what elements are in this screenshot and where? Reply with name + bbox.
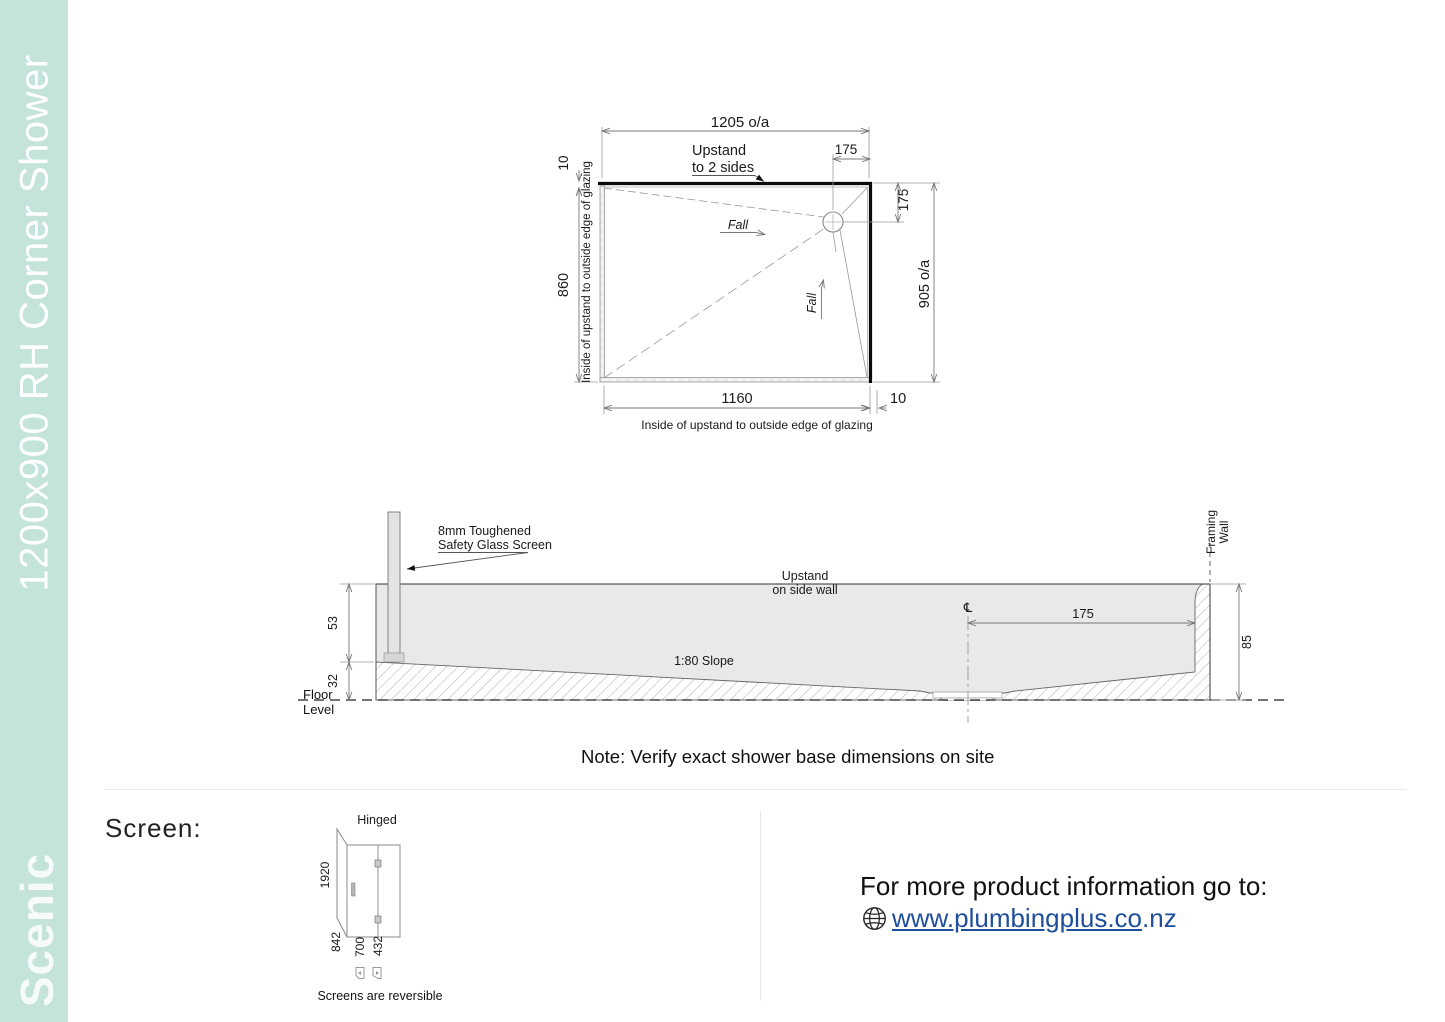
screen-heading: Screen: <box>105 813 202 844</box>
hinged-label: Hinged <box>357 813 397 827</box>
dim-drain-offset: 175 <box>1072 606 1094 621</box>
drain-channel <box>933 692 1002 698</box>
dim-base-height: 32 <box>326 674 340 688</box>
reversible-icon-left <box>354 966 366 980</box>
dim-upstand-height: 53 <box>326 616 340 630</box>
dim-glazing-top: 10 <box>556 155 571 170</box>
website-link-suffix[interactable]: .nz <box>1142 903 1177 933</box>
hinge-top <box>375 860 381 867</box>
site-note: Note: Verify exact shower base dimension… <box>581 746 994 768</box>
upstand-note-line2: to 2 sides <box>692 160 754 176</box>
upstand-note-line1: Upstand <box>692 143 746 159</box>
brand-logo: Scenic <box>10 853 64 1007</box>
website-link[interactable]: www.plumbingplus.co.nz <box>892 903 1177 934</box>
return-panel <box>337 829 347 937</box>
dim-inside-width: 1160 <box>721 391 752 407</box>
product-title: 1200x900 RH Corner Shower <box>13 54 58 591</box>
horizontal-divider <box>104 789 1406 790</box>
slope-label: 1:80 Slope <box>674 654 734 668</box>
floor-level-label: Floor Level <box>303 688 335 717</box>
dim-total-height: 85 <box>1240 635 1254 649</box>
framing-wall-label1: Framing <box>1204 510 1218 554</box>
dim-return-width: 842 <box>329 932 343 952</box>
section-view: 8mm Toughened Safety Glass Screen Upstan… <box>290 495 1290 765</box>
dim-overall-depth: 905 o/a <box>917 259 933 308</box>
upstand-wall-label2: on side wall <box>772 583 837 597</box>
plan-view: Fall Fall 1205 o/a Upstand to 2 sides 17… <box>540 100 970 445</box>
dim-glazing-right: 10 <box>890 391 906 407</box>
vertical-divider <box>760 811 761 1001</box>
dim-drain-offset-right: 175 <box>896 189 911 212</box>
reversible-label: Screens are reversible <box>315 989 445 1003</box>
plan-bottom-label: Inside of upstand to outside edge of gla… <box>641 418 873 432</box>
upstand-wall-label1: Upstand <box>782 569 829 583</box>
glass-label-line2: Safety Glass Screen <box>438 538 552 552</box>
info-link-row: www.plumbingplus.co.nz <box>862 903 1177 934</box>
fall-label-2: Fall <box>805 292 819 313</box>
drawing-sheet: 1200x900 RH Corner Shower Scenic <box>0 0 1445 1022</box>
globe-icon <box>862 906 887 931</box>
plan-left-label: Inside of upstand to outside edge of gla… <box>581 161 593 383</box>
reversible-icons <box>354 966 383 980</box>
handle <box>352 883 356 896</box>
dim-door-width: 700 <box>353 937 367 957</box>
reversible-icon-right <box>371 966 383 980</box>
dim-overall-width: 1205 o/a <box>711 114 770 131</box>
info-text: For more product information go to: <box>860 871 1268 902</box>
glass-channel <box>384 653 404 662</box>
website-link-main[interactable]: www.plumbingplus.co <box>892 903 1142 933</box>
glass-label-line1: 8mm Toughened <box>438 524 531 538</box>
dim-inside-depth: 860 <box>556 273 572 297</box>
centerline-symbol: ℄ <box>963 600 973 615</box>
sidebar: 1200x900 RH Corner Shower Scenic <box>0 0 68 1022</box>
framing-wall-label2: Wall <box>1217 521 1231 544</box>
dim-fixed-width: 432 <box>371 936 385 956</box>
dim-drain-offset-top: 175 <box>835 142 858 157</box>
dim-screen-height: 1920 <box>318 861 332 888</box>
fall-label-1: Fall <box>728 218 749 232</box>
glass-screen-section <box>388 512 400 662</box>
hinge-bottom <box>375 916 381 923</box>
